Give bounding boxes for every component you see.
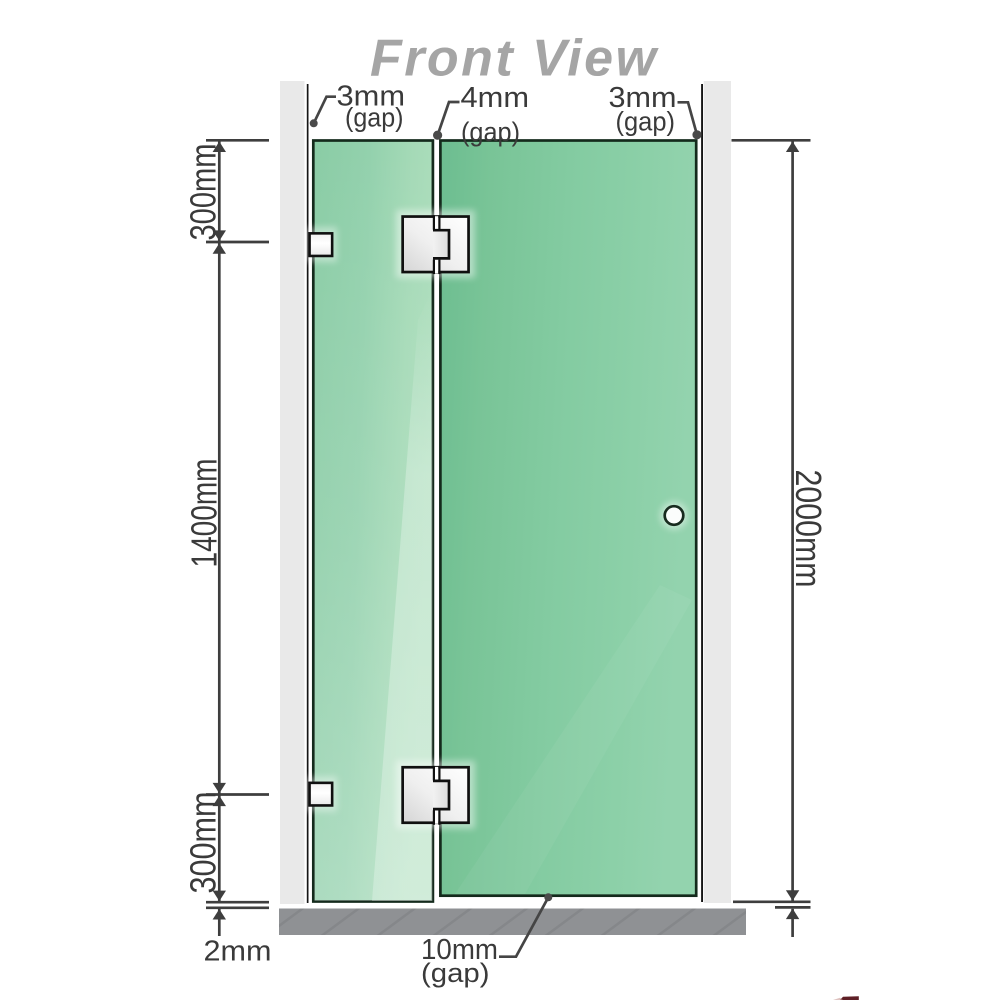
svg-text:(gap): (gap) xyxy=(345,103,404,133)
svg-text:(gap): (gap) xyxy=(461,117,520,147)
svg-text:Front View: Front View xyxy=(370,30,660,88)
svg-text:4mm: 4mm xyxy=(461,82,530,114)
svg-text:2mm: 2mm xyxy=(204,936,272,968)
svg-text:300mm: 300mm xyxy=(182,792,223,894)
svg-text:(gap): (gap) xyxy=(616,107,676,137)
svg-text:1400mm: 1400mm xyxy=(184,459,225,568)
svg-text:2000mm: 2000mm xyxy=(788,470,829,588)
svg-text:300mm: 300mm xyxy=(182,144,223,241)
svg-text:(gap): (gap) xyxy=(421,958,490,988)
